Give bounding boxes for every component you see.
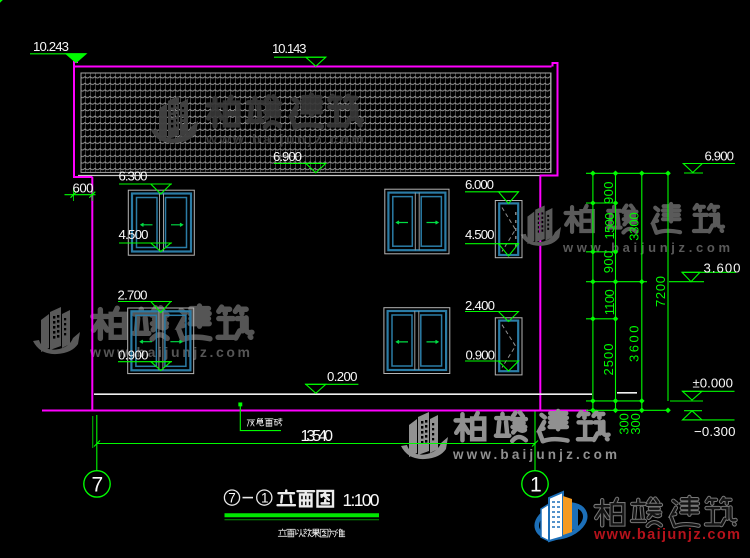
svg-text:3.600: 3.600: [704, 260, 741, 275]
svg-text:4.500: 4.500: [465, 227, 495, 242]
svg-text:0.900: 0.900: [466, 348, 496, 363]
svg-text:4.500: 4.500: [119, 227, 149, 242]
svg-text:1:100: 1:100: [343, 490, 380, 510]
svg-text:13540: 13540: [301, 428, 334, 445]
svg-text:600: 600: [73, 181, 94, 196]
svg-text:1: 1: [261, 491, 269, 506]
svg-text:7200: 7200: [653, 276, 668, 307]
svg-text:6.000: 6.000: [465, 177, 494, 192]
svg-text:6.900: 6.900: [705, 149, 735, 164]
svg-text:2500: 2500: [601, 344, 616, 376]
svg-text:2.700: 2.700: [118, 288, 148, 303]
svg-text:1100: 1100: [602, 289, 617, 315]
svg-text:900: 900: [601, 182, 616, 205]
svg-text:300: 300: [628, 413, 643, 435]
svg-text:3300: 3300: [627, 212, 642, 241]
svg-text:7: 7: [228, 491, 236, 506]
svg-text:2.400: 2.400: [465, 298, 495, 313]
svg-text:0.900: 0.900: [118, 348, 149, 363]
svg-text:1: 1: [530, 474, 542, 497]
svg-text:www.baijunjz.com: www.baijunjz.com: [593, 527, 740, 543]
svg-text:6.900: 6.900: [273, 149, 302, 164]
svg-text:−0.300: −0.300: [694, 424, 736, 439]
svg-text:900: 900: [601, 251, 616, 274]
svg-text:10.143: 10.143: [272, 41, 307, 56]
svg-text:6.300: 6.300: [119, 169, 148, 184]
svg-text:7: 7: [92, 474, 104, 497]
svg-text:10.243: 10.243: [33, 39, 69, 54]
svg-text:0.200: 0.200: [327, 369, 358, 384]
svg-text:1500: 1500: [602, 213, 617, 240]
svg-text:±0.000: ±0.000: [693, 376, 734, 391]
